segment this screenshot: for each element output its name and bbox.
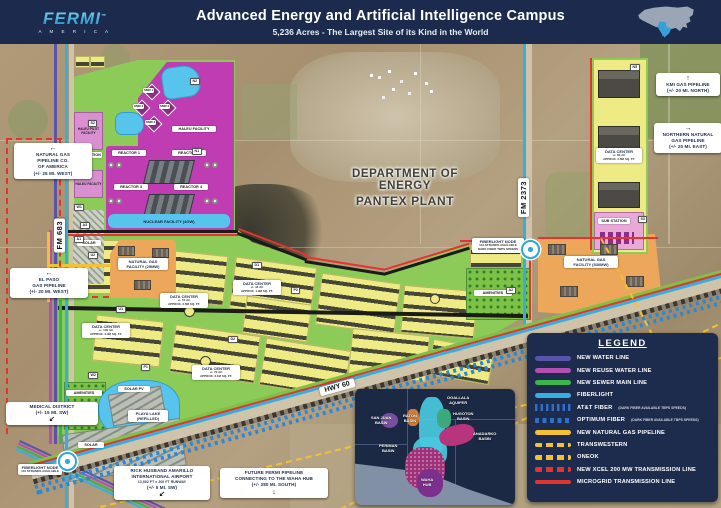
water-line-swatch <box>535 356 571 361</box>
parcel-tag: S3 <box>638 216 647 223</box>
terrain-pivot-circle <box>8 100 48 140</box>
anadarko-label: ANADARKOBASIN <box>473 431 496 441</box>
parcel-tag: P2 <box>291 287 300 294</box>
left-arrow-icon: ← <box>16 145 90 152</box>
callout-el-paso-pipeline: ← EL PASOGAS PIPELINE (+/- 20 MI. WEST) <box>10 268 88 298</box>
fiberlight-node-label: FIBERLIGHT NODE 144 STRANDS AVAILABLE <box>18 464 62 475</box>
permian-label: PERMIANBASIN <box>379 443 397 453</box>
reactor-label: REACTOR 1 <box>112 150 146 156</box>
parcel-tag: A3 <box>80 222 90 229</box>
parcel-tag: P1 <box>141 364 150 371</box>
hugoton-label: HUGOTONBASIN <box>453 411 473 421</box>
oneok-swatch <box>535 455 571 460</box>
page-title: Advanced Energy and Artificial Intellige… <box>150 8 611 24</box>
page-subtitle: 5,236 Acres - The Largest Site of its Ki… <box>150 27 611 37</box>
fermi-logo-america: A M E R I C A <box>0 29 150 34</box>
playa-lake-label: PLAYA LAKE(REFILLED) <box>128 410 168 422</box>
utility-block <box>90 56 105 68</box>
gas-east-label: NATURAL GASFACILITY (530MW) <box>564 256 618 268</box>
fiberlight-node-icon <box>521 240 540 259</box>
cooling-tower-icon <box>108 198 114 204</box>
transwestern-swatch <box>535 443 571 448</box>
parcel-tag: A2 <box>506 287 516 294</box>
up-arrow-icon: ↑ <box>658 75 718 82</box>
xcel-transmission-swatch <box>535 467 571 472</box>
legend-item: MICROGRID TRANSMISSION LINE <box>535 476 710 488</box>
data-center-label: DATA CENTER+/- 100 ACAPPROX. 4.4M SQ. FT… <box>82 323 130 338</box>
sewer-main-swatch <box>535 380 571 385</box>
data-center-building <box>598 70 640 98</box>
basin-inset-map: OGALLALAAQUIFER SAN JUANBASIN RATONBASIN… <box>355 389 515 505</box>
hugoton-basin-shape <box>437 409 451 428</box>
smr-label: SMR 2 <box>159 104 170 109</box>
legend-item: NEW SEWER MAIN LINE <box>535 377 710 389</box>
parcel-tag: S2 <box>88 120 97 127</box>
fiberlight-node-icon <box>58 452 77 471</box>
callout-northern-natural-pipeline: → NORTHERN NATURALGAS PIPELINE (+/- 20 M… <box>654 123 721 153</box>
terrain-building-dots <box>370 74 373 77</box>
nuclear-facility-strip: NUCLEAR FACILITY (4GW) <box>108 214 230 228</box>
cooling-tower-icon <box>212 162 218 168</box>
fm683-label: FM 683 <box>54 218 65 252</box>
map-canvas: SMR 1 SMR 3 SMR 2 SMR 4 HALEU FACILITY R… <box>0 44 721 508</box>
fermi-logo: FERMI™ A M E R I C A <box>0 10 150 34</box>
cooling-tower-icon <box>212 198 218 204</box>
cooling-tower-icon <box>116 162 122 168</box>
southwest-arrow-icon: ↙ <box>116 491 208 498</box>
xcel-transmission-line <box>6 138 8 434</box>
microgrid-line <box>590 58 592 250</box>
gas-equipment <box>118 246 135 256</box>
callout-medical-district: MEDICAL DISTRICT(+/- 15 MI. SW) ↙ <box>6 402 98 425</box>
gas-equipment <box>152 248 169 258</box>
legend-item: NEW NATURAL GAS PIPELINE <box>535 426 710 438</box>
terrain-green-field <box>242 84 297 139</box>
reuse-water-swatch <box>535 368 571 373</box>
legend-item: AT&T FIBER(DARK FIBER AVAILABLE TBPS SPE… <box>535 402 710 414</box>
header-titles: Advanced Energy and Artificial Intellige… <box>150 8 611 37</box>
parcel-tag: N5 <box>630 64 640 71</box>
reactor-label: REACTOR 3 <box>114 184 148 190</box>
data-center-label: DATA CENTER+/- 72 ACAPPROX. 3.1M SQ. FT. <box>192 365 240 380</box>
legend-item: TRANSWESTERN <box>535 439 710 451</box>
smr-label: SMR 1 <box>143 88 154 93</box>
solar-panel-array <box>143 160 195 184</box>
parcel-tag: D2 <box>228 336 238 343</box>
data-center-label: DATA CENTER+/- 57 ACAPPROX. 2.5M SQ. FT. <box>160 293 208 308</box>
campus-road <box>60 230 238 233</box>
gas-equipment <box>626 276 644 287</box>
left-arrow-icon: ← <box>12 270 86 277</box>
parcel-tag: W2 <box>88 372 98 379</box>
cooling-tower-icon <box>116 198 122 204</box>
parcel-tag: N2 <box>190 78 200 85</box>
section-road <box>420 44 421 244</box>
smr-label: SMR 3 <box>133 104 144 109</box>
reactor-label: REACTOR 4 <box>174 184 208 190</box>
roundabout <box>430 294 440 304</box>
legend-item: NEW WATER LINE <box>535 352 710 364</box>
right-arrow-icon: → <box>656 125 720 132</box>
legend-item: NEW XCEL 200 MW TRANSMISSION LINE <box>535 464 710 476</box>
gas-equipment <box>134 280 151 290</box>
utility-block <box>75 56 90 68</box>
fermi-logo-word: FERMI™ <box>0 10 150 27</box>
callout-natural-gas-pipeline-co: ← NATURAL GASPIPELINE CO. OF AMERICA(+/-… <box>14 143 92 179</box>
southwest-arrow-icon: ↙ <box>8 416 96 423</box>
parcel-tag: W1 <box>74 204 84 211</box>
data-center-pod <box>315 273 401 336</box>
callout-waha-pipeline: FUTURE FERMI PIPELINECONNECTING TO THE W… <box>220 468 328 498</box>
data-center-label: DATA CENTER+/- 60 ACAPPROX. 2.6M SQ. FT. <box>596 148 642 163</box>
microgrid-swatch <box>535 480 571 484</box>
haleu-small-label: HALEU FACILITY <box>75 182 101 186</box>
fiberlight-swatch <box>535 393 571 398</box>
legend-item: FIBERLIGHT <box>535 389 710 401</box>
data-center-label: DATA CENTER+/- 44 ACAPPROX. 1.9M SQ. FT. <box>233 280 281 295</box>
optimum-fiber-swatch <box>535 418 571 423</box>
haleu-facility-label: HALEU FACILITY <box>172 126 216 132</box>
legend-item: ONEOK <box>535 451 710 463</box>
callout-kmi-pipeline: ↑ KMI GAS PIPELINE(+/- 20 MI. NORTH) <box>656 73 720 96</box>
legend-item: OPTIMUM FIBER(DARK FIBER AVAILABLE TBPS … <box>535 414 710 426</box>
microgrid-line <box>529 252 531 320</box>
solar-label: SOLAR <box>78 442 104 448</box>
cooling-tower-icon <box>108 162 114 168</box>
legend-item: NEW REUSE WATER LINE <box>535 364 710 376</box>
cooling-tower-icon <box>204 198 210 204</box>
microgrid-line <box>538 237 658 239</box>
cooling-tower-icon <box>204 162 210 168</box>
gas-pipeline-swatch <box>535 430 571 435</box>
parcel-tag: D1 <box>252 262 262 269</box>
smr-label: SMR 4 <box>145 120 156 125</box>
gas-equipment <box>548 244 566 255</box>
legend-title: LEGEND <box>535 338 710 349</box>
solar-pv-label: SOLAR PV <box>118 386 150 392</box>
parcel-tag: N1 <box>192 148 202 155</box>
ogallala-label: OGALLALAAQUIFER <box>447 395 469 405</box>
down-arrow-icon: ↓ <box>222 489 326 496</box>
amenities-label: AMENITIES <box>66 390 102 396</box>
gas-west-label: NATURAL GASFACILITY (25MW) <box>118 258 168 270</box>
waha-hub-label: WAHAHUB <box>421 477 433 487</box>
terrain-pantex-area <box>290 52 500 182</box>
usa-map-icon <box>611 3 721 41</box>
pond <box>115 112 144 135</box>
callout-airport: RICK HUSBAND AMARILLOINTERNATIONAL AIRPO… <box>114 466 210 500</box>
gas-equipment <box>560 286 578 297</box>
parcel-tag: U2 <box>88 252 98 259</box>
header-bar: FERMI™ A M E R I C A Advanced Energy and… <box>0 0 721 44</box>
microgrid-line <box>60 234 238 236</box>
nuclear-facility-label: NUCLEAR FACILITY (4GW) <box>143 219 194 224</box>
legend-panel: LEGEND NEW WATER LINE NEW REUSE WATER LI… <box>527 333 718 502</box>
xcel-transmission-line <box>6 138 62 140</box>
fiberlight-node-label: FIBERLIGHT NODE 144 STRANDS AVAILABLE DA… <box>472 238 524 253</box>
raton-label: RATONBASIN <box>403 413 417 423</box>
substation-label: SUB STATION <box>598 218 630 224</box>
doe-pantex-label: DEPARTMENT OF ENERGY PANTEX PLANT <box>325 168 485 208</box>
data-center-building <box>598 182 640 208</box>
parcel-tag: U1 <box>116 306 126 313</box>
haleu-pilot-label: HALEU PILOT FACILITY <box>75 127 102 135</box>
gas-pipeline-line <box>47 264 111 267</box>
san-juan-label: SAN JUANBASIN <box>371 415 391 425</box>
att-fiber-swatch <box>535 404 571 411</box>
campus-map-poster: FERMI™ A M E R I C A Advanced Energy and… <box>0 0 721 508</box>
parcel-tag: A1 <box>74 236 84 243</box>
fm2373-label: FM 2373 <box>518 178 529 217</box>
